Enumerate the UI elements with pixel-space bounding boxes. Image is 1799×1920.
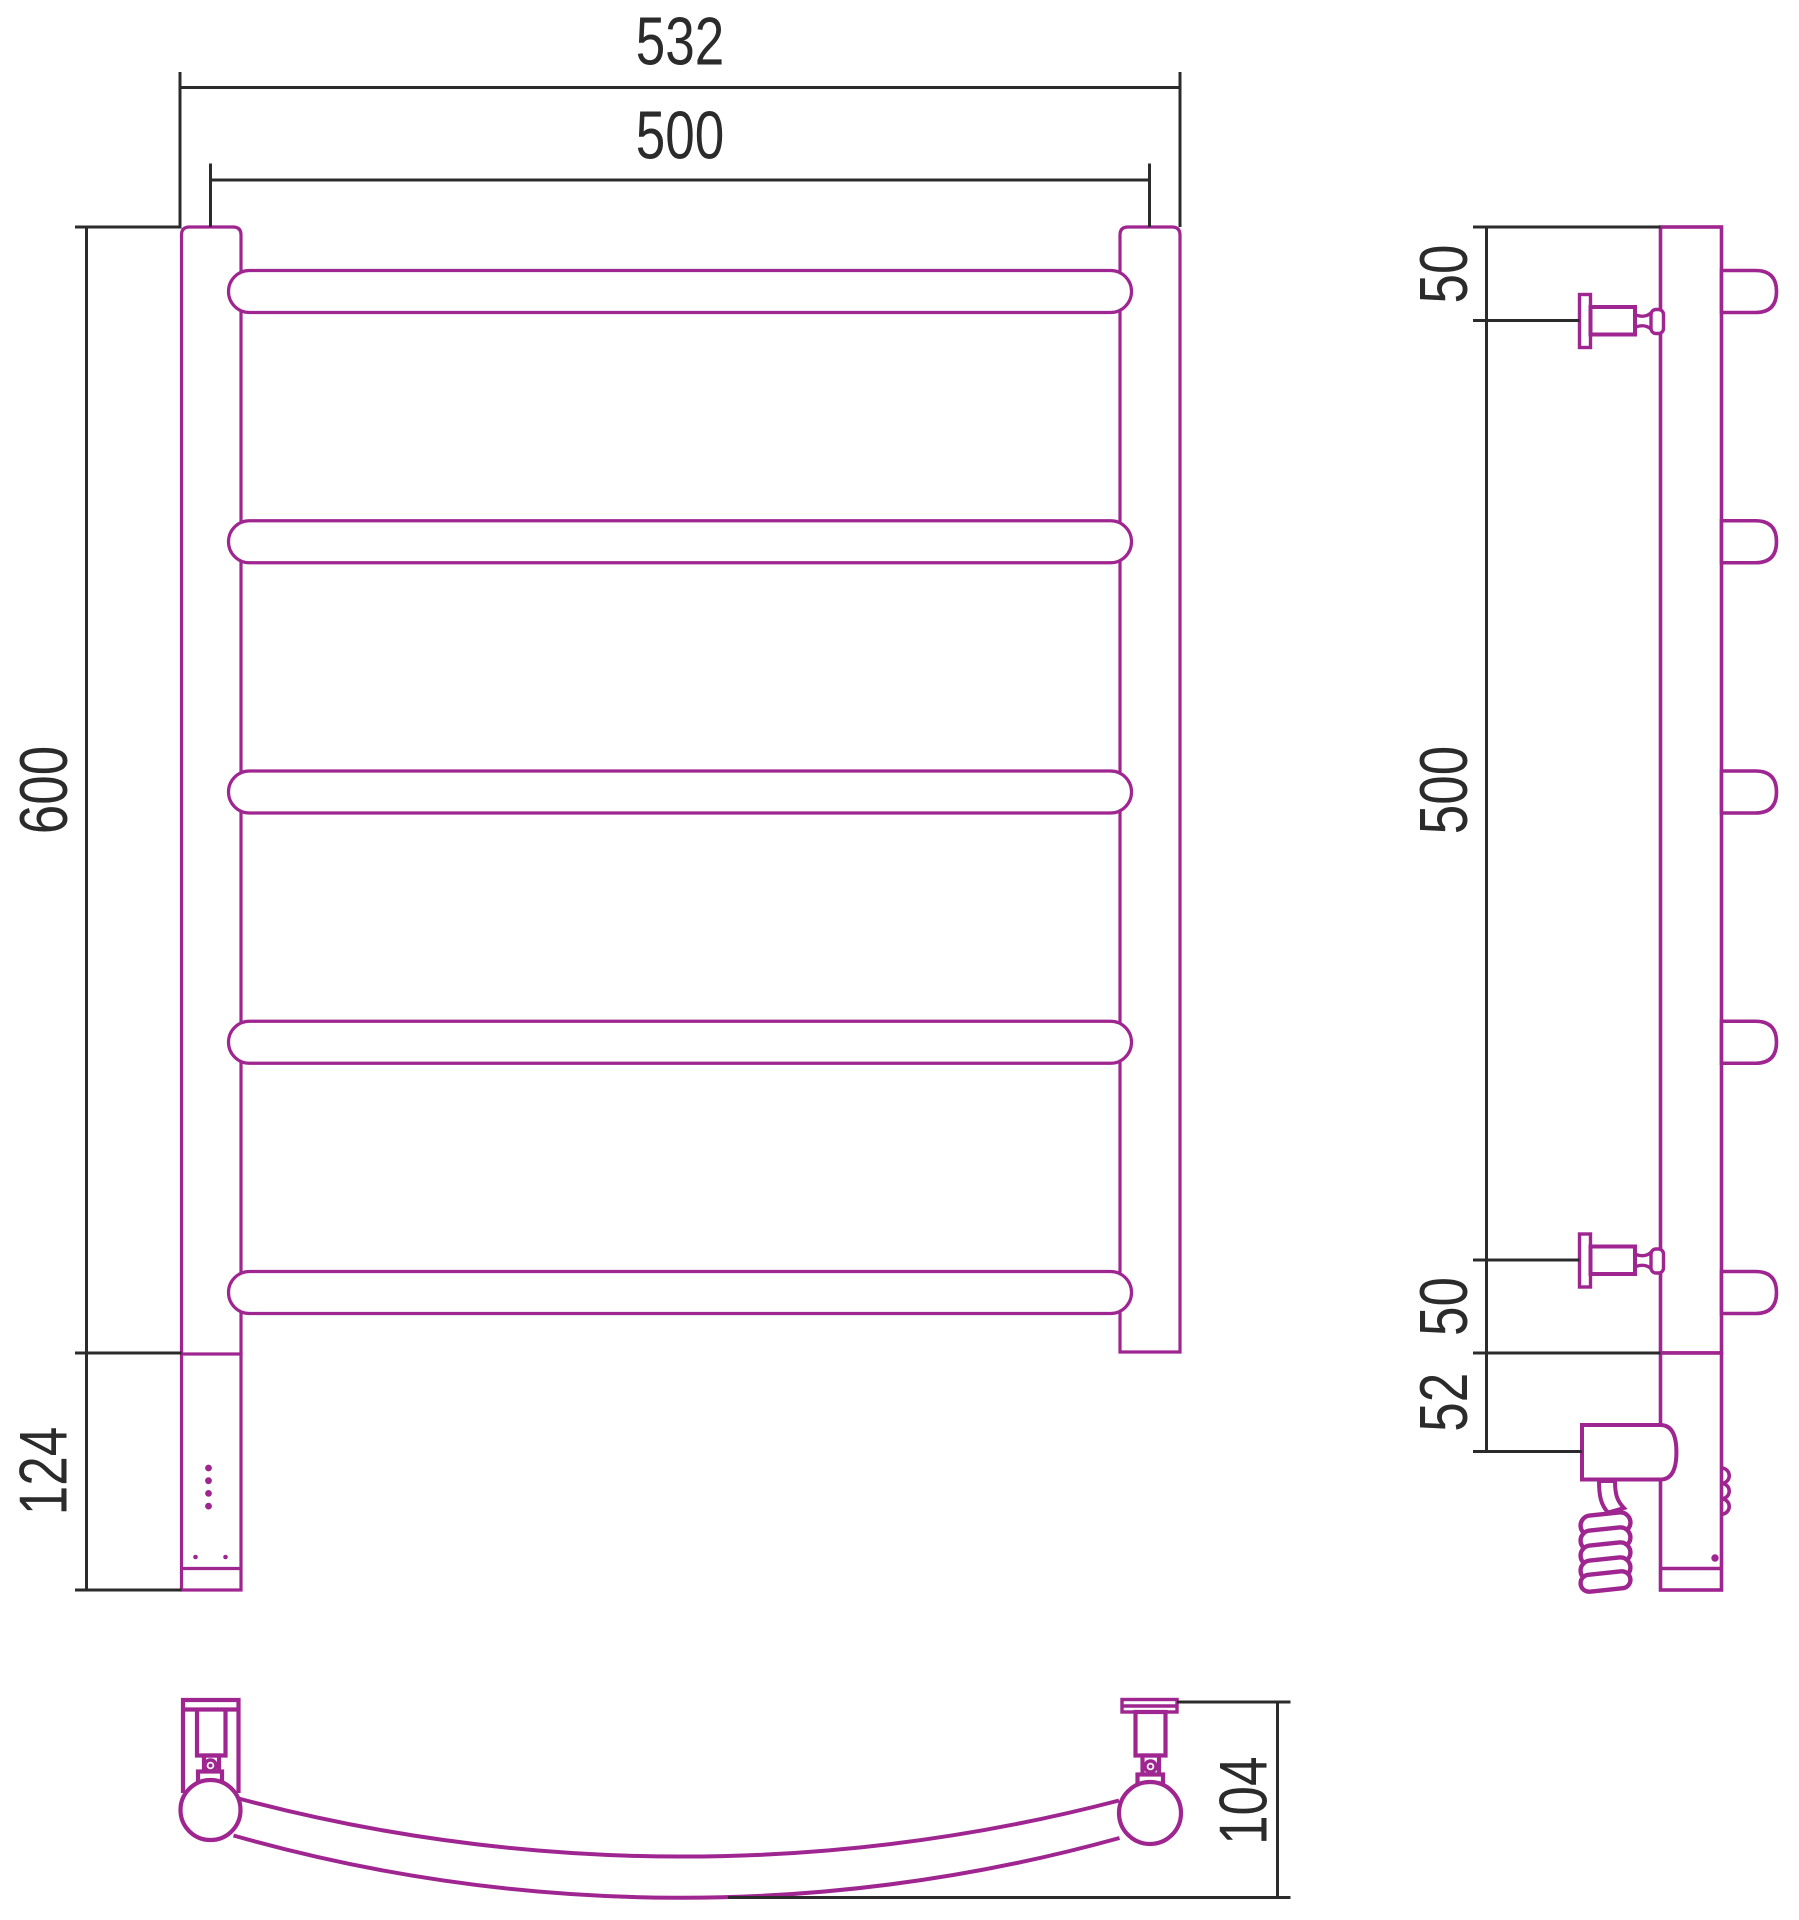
svg-text:124: 124 [5,1427,81,1515]
svg-text:104: 104 [1205,1756,1281,1844]
svg-text:532: 532 [636,3,724,79]
svg-text:500: 500 [1406,746,1482,834]
svg-text:50: 50 [1406,245,1482,304]
svg-text:50: 50 [1406,1277,1482,1336]
svg-text:600: 600 [6,746,82,834]
svg-text:500: 500 [636,97,724,173]
svg-text:52: 52 [1406,1373,1482,1432]
